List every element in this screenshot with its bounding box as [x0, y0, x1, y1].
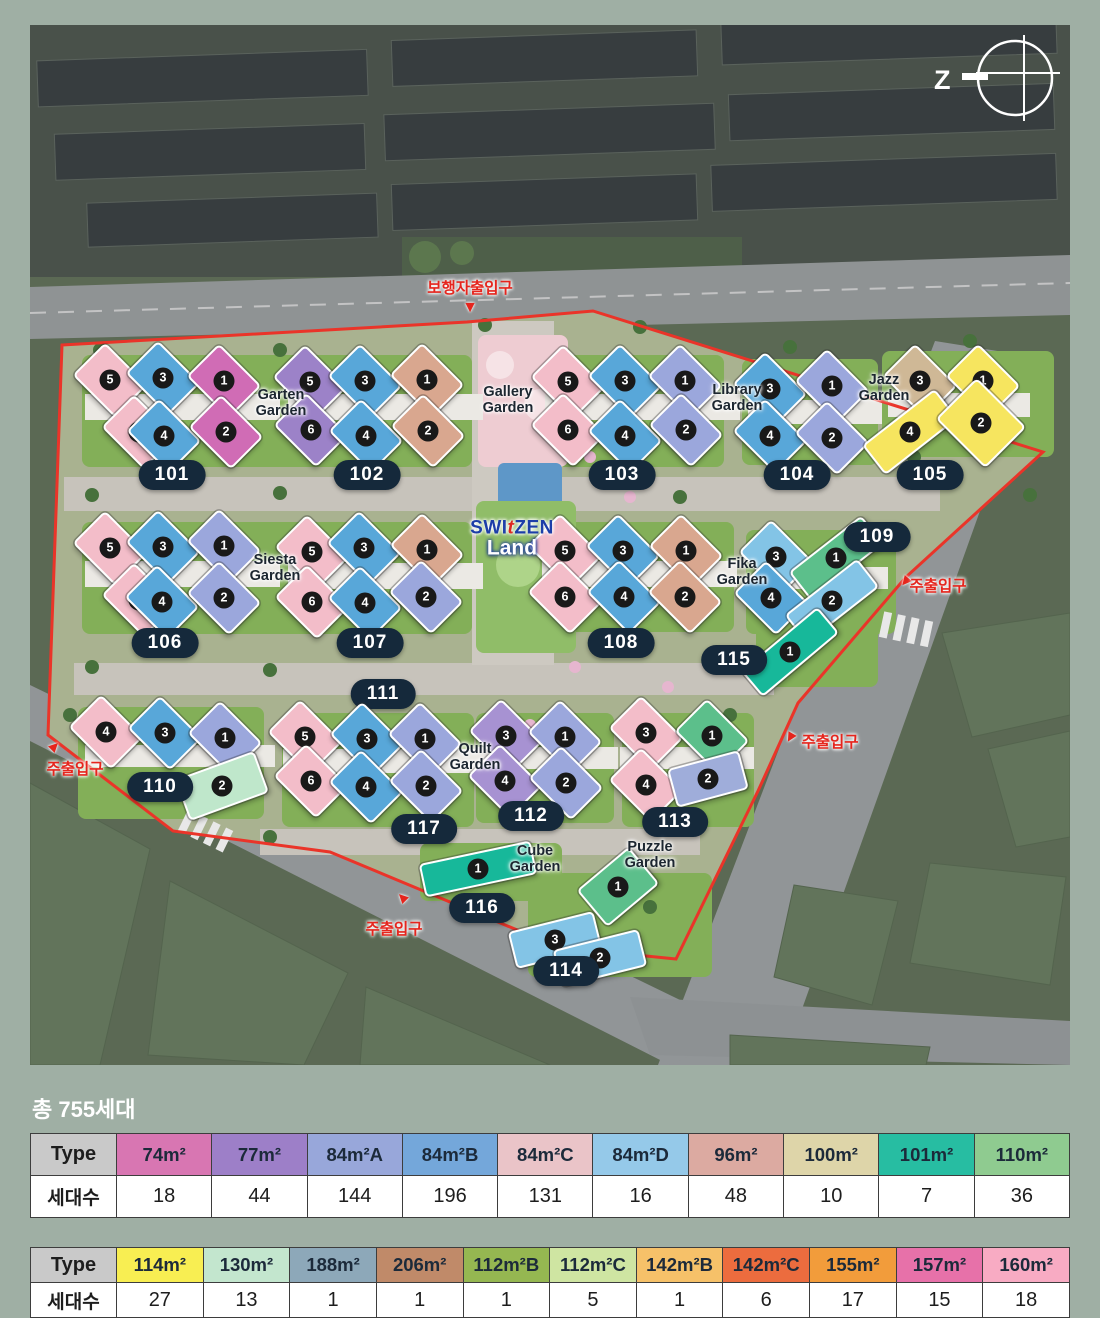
block-label: 103: [589, 460, 656, 490]
entrance-label: 주출입구: [365, 917, 422, 939]
garden-label: QuiltGarden: [450, 741, 501, 773]
building-number: 4: [356, 426, 377, 447]
unit-count-cell: 196: [402, 1176, 497, 1218]
building-marker: 2: [667, 750, 749, 808]
building-number: 4: [355, 593, 376, 614]
building-number: 1: [675, 371, 696, 392]
unit-type-cell: 142m²B: [636, 1248, 723, 1283]
garden-label: FikaGarden: [717, 556, 768, 588]
household-count-header: 세대수: [31, 1176, 117, 1218]
building-number: 3: [357, 729, 378, 750]
building-marker: 4: [587, 560, 662, 635]
unit-count-cell: 1: [636, 1283, 723, 1318]
unit-type-cell: 112m²C: [550, 1248, 637, 1283]
building-number: 3: [153, 537, 174, 558]
building-number: 2: [212, 776, 233, 797]
total-households: 총 755세대: [32, 1092, 1100, 1124]
unit-type-cell: 155m²: [810, 1248, 897, 1283]
unit-count-cell: 131: [498, 1176, 593, 1218]
building-marker: 2: [189, 395, 264, 470]
garden-label: CubeGarden: [510, 843, 561, 875]
unit-count-cell: 1: [290, 1283, 377, 1318]
household-count-header: 세대수: [31, 1283, 117, 1318]
unit-type-cell: 142m²C: [723, 1248, 810, 1283]
building-number: 3: [910, 371, 931, 392]
compass-icon: Z: [920, 31, 1070, 131]
unit-count-cell: 13: [203, 1283, 290, 1318]
unit-type-cell: 96m²: [688, 1134, 783, 1176]
building-number: 1: [826, 548, 847, 569]
building-number: 1: [417, 370, 438, 391]
building-number: 2: [676, 420, 697, 441]
building-number: 2: [214, 588, 235, 609]
switzen-land-logo: SWItZENLand: [470, 518, 554, 561]
building-number: 1: [702, 726, 723, 747]
building-number: 1: [417, 540, 438, 561]
unit-type-cell: 110m²: [974, 1134, 1069, 1176]
unit-type-cell: 157m²: [896, 1248, 983, 1283]
building-number: 1: [415, 729, 436, 750]
block-label: 102: [334, 460, 401, 490]
unit-table: Type114m²130m²188m²206m²112m²B112m²C142m…: [30, 1247, 1070, 1318]
block-label: 107: [337, 628, 404, 658]
building-number: 2: [416, 776, 437, 797]
unit-count-cell: 5: [550, 1283, 637, 1318]
unit-count-cell: 15: [896, 1283, 983, 1318]
garden-label: SiestaGarden: [250, 552, 301, 584]
block-label: 115: [701, 645, 767, 675]
building-marker: 2: [648, 560, 723, 635]
unit-type-cell: 114m²: [117, 1248, 204, 1283]
unit-count-cell: 7: [879, 1176, 974, 1218]
unit-type-cell: 84m²B: [402, 1134, 497, 1176]
unit-count-cell: 10: [784, 1176, 879, 1218]
building-number: 6: [555, 587, 576, 608]
building-number: 5: [302, 542, 323, 563]
type-header: Type: [31, 1134, 117, 1176]
garden-label: GartenGarden: [256, 387, 307, 419]
building-number: 3: [153, 368, 174, 389]
building-number: 6: [302, 592, 323, 613]
compass-letter: Z: [934, 65, 951, 95]
building-number: 4: [96, 722, 117, 743]
garden-label: LibraryGarden: [712, 382, 763, 414]
block-label: 101: [139, 460, 206, 490]
building-number: 3: [760, 379, 781, 400]
building-number: 3: [613, 541, 634, 562]
unit-type-cell: 84m²D: [593, 1134, 688, 1176]
building-number: 3: [355, 371, 376, 392]
unit-type-cell: 84m²A: [307, 1134, 402, 1176]
unit-table: Type74m²77m²84m²A84m²B84m²C84m²D96m²100m…: [30, 1133, 1070, 1218]
building-number: 2: [675, 587, 696, 608]
block-label: 114: [533, 956, 599, 986]
building-number: 5: [100, 370, 121, 391]
garden-label: GalleryGarden: [483, 384, 534, 416]
block-label: 110: [127, 772, 193, 802]
unit-count-cell: 36: [974, 1176, 1069, 1218]
unit-type-cell: 160m²: [983, 1248, 1070, 1283]
building-number: 2: [418, 421, 439, 442]
building-number: 4: [356, 777, 377, 798]
building-number: 5: [555, 541, 576, 562]
entrance-label: 보행자출입구: [427, 276, 513, 298]
unit-count-cell: 17: [810, 1283, 897, 1318]
block-label: 109: [844, 522, 911, 552]
unit-type-cell: 77m²: [212, 1134, 307, 1176]
unit-count-cell: 1: [463, 1283, 550, 1318]
type-header: Type: [31, 1248, 117, 1283]
building-number: 6: [301, 771, 322, 792]
unit-type-cell: 74m²: [117, 1134, 212, 1176]
building-number: 3: [155, 723, 176, 744]
building-number: 4: [760, 426, 781, 447]
unit-type-cell: 206m²: [376, 1248, 463, 1283]
entrance-label: 주출입구: [801, 730, 858, 752]
building-number: 4: [154, 426, 175, 447]
unit-type-cell: 112m²B: [463, 1248, 550, 1283]
building-number: 4: [900, 422, 921, 443]
block-label: 108: [588, 628, 655, 658]
building-number: 1: [676, 541, 697, 562]
building-number: 5: [100, 538, 121, 559]
unit-count-cell: 27: [117, 1283, 204, 1318]
entrance-label: 주출입구: [909, 574, 966, 596]
unit-count-cell: 144: [307, 1176, 402, 1218]
unit-summary-tables: Type74m²77m²84m²A84m²B84m²C84m²D96m²100m…: [30, 1133, 1070, 1318]
block-label: 106: [132, 628, 199, 658]
building-number: 2: [416, 587, 437, 608]
entrance-arrow-icon: ▼: [462, 300, 478, 316]
building-number: 1: [214, 536, 235, 557]
unit-type-cell: 100m²: [784, 1134, 879, 1176]
building-number: 1: [214, 371, 235, 392]
building-number: 1: [215, 728, 236, 749]
unit-type-cell: 130m²: [203, 1248, 290, 1283]
building-number: 2: [698, 769, 719, 790]
building-number: 4: [614, 587, 635, 608]
entrance-label: 주출입구: [46, 757, 103, 779]
entrance-arrow-icon: ▼: [779, 727, 801, 749]
building-number: 2: [556, 773, 577, 794]
building-number: 3: [615, 371, 636, 392]
building-number: 4: [615, 426, 636, 447]
block-label: 117: [391, 814, 457, 844]
unit-count-cell: 18: [117, 1176, 212, 1218]
building-marker: 4: [329, 750, 404, 825]
building-number: 3: [636, 723, 657, 744]
entrance-arrow-icon: ▼: [391, 886, 414, 909]
building-number: 1: [555, 727, 576, 748]
block-label: 112: [498, 801, 564, 831]
garden-label: JazzGarden: [859, 372, 910, 404]
block-label: 104: [764, 460, 831, 490]
building-number: 4: [761, 588, 782, 609]
building-number: 2: [971, 413, 992, 434]
building-number: 1: [468, 859, 489, 880]
building-marker: 2: [389, 560, 464, 635]
building-number: 2: [822, 591, 843, 612]
block-label: 116: [449, 893, 515, 923]
block-label: 105: [897, 460, 964, 490]
building-number: 4: [636, 775, 657, 796]
unit-type-cell: 101m²: [879, 1134, 974, 1176]
building-number: 1: [608, 877, 629, 898]
unit-count-cell: 44: [212, 1176, 307, 1218]
building-number: 1: [822, 376, 843, 397]
building-number: 5: [558, 372, 579, 393]
building-number: 4: [152, 592, 173, 613]
block-label: 113: [642, 807, 708, 837]
building-marker: 2: [391, 394, 466, 469]
building-number: 3: [354, 538, 375, 559]
unit-count-cell: 18: [983, 1283, 1070, 1318]
unit-count-cell: 6: [723, 1283, 810, 1318]
garden-label: PuzzleGarden: [625, 839, 676, 871]
entrance-arrow-icon: ▼: [44, 735, 67, 758]
building-number: 6: [301, 420, 322, 441]
building-number: 2: [822, 428, 843, 449]
unit-type-cell: 188m²: [290, 1248, 377, 1283]
building-number: 4: [495, 771, 516, 792]
building-number: 1: [780, 642, 801, 663]
site-plan-map: 5316421015316421025316421033142104314210…: [30, 25, 1070, 1065]
unit-count-cell: 1: [376, 1283, 463, 1318]
unit-count-cell: 16: [593, 1176, 688, 1218]
building-number: 2: [216, 422, 237, 443]
building-number: 6: [558, 420, 579, 441]
unit-count-cell: 48: [688, 1176, 783, 1218]
unit-type-cell: 84m²C: [498, 1134, 593, 1176]
